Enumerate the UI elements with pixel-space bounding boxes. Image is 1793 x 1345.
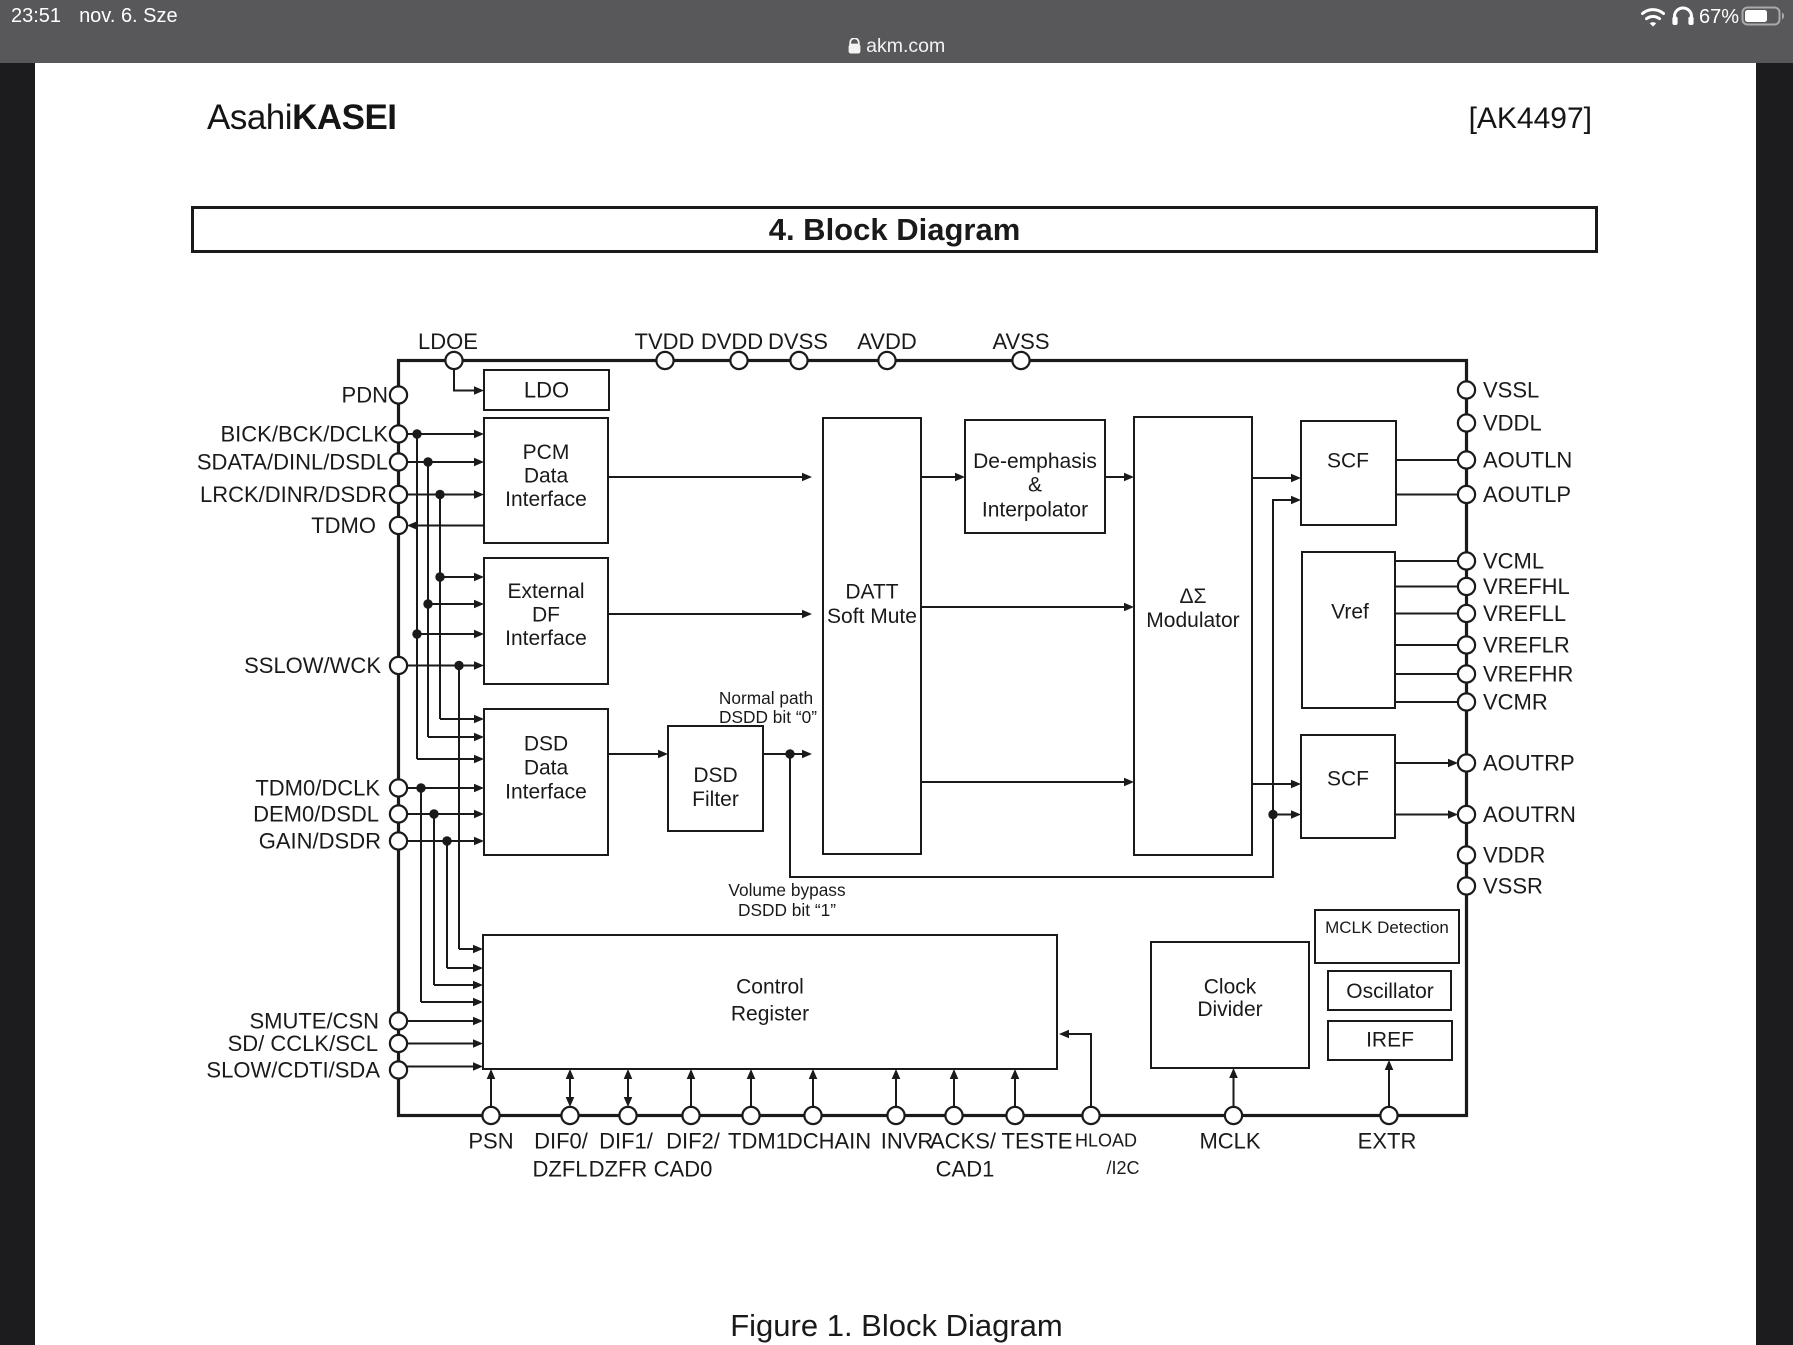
svg-text:DATT: DATT: [845, 581, 898, 604]
svg-text:De-emphasis: De-emphasis: [973, 450, 1097, 473]
svg-text:AVSS: AVSS: [992, 329, 1049, 354]
svg-text:Normal path: Normal path: [719, 688, 813, 708]
svg-text:VREFLL: VREFLL: [1483, 601, 1566, 626]
svg-text:DSD: DSD: [524, 733, 568, 756]
svg-text:LDOE: LDOE: [418, 329, 478, 354]
svg-text:DSDD bit “0”: DSDD bit “0”: [719, 707, 817, 727]
svg-text:SSLOW/WCK: SSLOW/WCK: [244, 653, 381, 678]
svg-text:AOUTRP: AOUTRP: [1483, 751, 1575, 776]
svg-text:HLOAD: HLOAD: [1075, 1131, 1137, 1151]
svg-text:Interface: Interface: [505, 627, 587, 650]
svg-text:Modulator: Modulator: [1146, 609, 1239, 632]
svg-text:/I2C: /I2C: [1106, 1158, 1139, 1178]
svg-text:INVR: INVR: [881, 1129, 934, 1154]
svg-text:MCLK: MCLK: [1199, 1129, 1260, 1154]
svg-text:GAIN/DSDR: GAIN/DSDR: [259, 829, 381, 854]
svg-text:DIF2/: DIF2/: [666, 1129, 721, 1154]
svg-text:AVDD: AVDD: [857, 329, 917, 354]
svg-text:DVDD: DVDD: [701, 329, 763, 354]
svg-text:VREFHL: VREFHL: [1483, 574, 1570, 599]
svg-text:Clock: Clock: [1204, 976, 1257, 999]
svg-text:TDM0/DCLK: TDM0/DCLK: [255, 776, 380, 801]
svg-text:DF: DF: [532, 604, 560, 627]
svg-text:Interpolator: Interpolator: [982, 499, 1088, 522]
svg-text:EXTR: EXTR: [1358, 1129, 1417, 1154]
svg-text:Volume bypass: Volume bypass: [728, 880, 846, 900]
svg-text:LDO: LDO: [524, 378, 569, 403]
svg-text:LRCK/DINR/DSDR: LRCK/DINR/DSDR: [200, 482, 387, 507]
svg-text:PDN: PDN: [342, 383, 388, 408]
svg-text:ΔΣ: ΔΣ: [1179, 585, 1206, 608]
svg-text:CAD1: CAD1: [936, 1157, 995, 1182]
svg-text:Oscillator: Oscillator: [1346, 980, 1434, 1003]
svg-text:Divider: Divider: [1197, 998, 1262, 1021]
svg-text:CAD0: CAD0: [654, 1157, 713, 1182]
svg-text:VSSL: VSSL: [1483, 378, 1539, 403]
svg-text:AOUTRN: AOUTRN: [1483, 802, 1576, 827]
svg-text:DSD: DSD: [693, 764, 737, 787]
svg-text:VREFHR: VREFHR: [1483, 662, 1573, 687]
svg-text:MCLK Detection: MCLK Detection: [1325, 918, 1449, 937]
svg-text:VCMR: VCMR: [1483, 690, 1548, 715]
svg-text:SCF: SCF: [1327, 450, 1369, 473]
svg-text:Filter: Filter: [692, 788, 739, 811]
svg-text:BICK/BCK/DCLK: BICK/BCK/DCLK: [221, 422, 389, 447]
svg-text:SD/ CCLK/SCL: SD/ CCLK/SCL: [228, 1031, 378, 1056]
svg-text:Data: Data: [524, 465, 569, 488]
svg-text:Interface: Interface: [505, 488, 587, 511]
svg-text:VCML: VCML: [1483, 549, 1544, 574]
svg-text:ACKS/: ACKS/: [930, 1129, 997, 1154]
svg-text:SCF: SCF: [1327, 768, 1369, 791]
svg-text:Soft Mute: Soft Mute: [827, 605, 917, 628]
svg-text:DVSS: DVSS: [768, 329, 828, 354]
svg-text:Control: Control: [736, 976, 804, 999]
svg-text:VDDR: VDDR: [1483, 843, 1545, 868]
svg-text:VSSR: VSSR: [1483, 874, 1543, 899]
svg-text:Vref: Vref: [1331, 601, 1369, 624]
svg-text:DZFL: DZFL: [533, 1157, 588, 1182]
svg-text:AOUTLP: AOUTLP: [1483, 482, 1571, 507]
svg-text:PCM: PCM: [523, 441, 570, 464]
svg-text:VDDL: VDDL: [1483, 411, 1542, 436]
svg-text:VREFLR: VREFLR: [1483, 633, 1570, 658]
svg-text:TDMO: TDMO: [311, 513, 376, 538]
svg-text:SMUTE/CSN: SMUTE/CSN: [249, 1009, 379, 1034]
svg-text:AOUTLN: AOUTLN: [1483, 448, 1572, 473]
svg-text:PSN: PSN: [468, 1129, 513, 1154]
svg-text:DIF1/: DIF1/: [599, 1129, 654, 1154]
svg-text:TDM1: TDM1: [728, 1129, 788, 1154]
svg-text:&: &: [1028, 474, 1042, 497]
svg-text:External: External: [507, 580, 584, 603]
svg-text:TVDD: TVDD: [635, 329, 695, 354]
svg-text:Interface: Interface: [505, 781, 587, 804]
svg-text:TESTE: TESTE: [1002, 1129, 1073, 1154]
svg-text:SDATA/DINL/DSDL: SDATA/DINL/DSDL: [197, 450, 388, 475]
svg-text:IREF: IREF: [1366, 1029, 1414, 1052]
svg-text:DIF0/: DIF0/: [534, 1129, 589, 1154]
svg-text:Register: Register: [731, 1003, 809, 1026]
svg-text:SLOW/CDTI/SDA: SLOW/CDTI/SDA: [206, 1058, 380, 1083]
svg-text:DCHAIN: DCHAIN: [787, 1129, 871, 1154]
svg-text:Data: Data: [524, 757, 569, 780]
svg-text:DSDD bit “1”: DSDD bit “1”: [738, 900, 836, 920]
svg-text:DZFR: DZFR: [589, 1157, 648, 1182]
svg-text:DEM0/DSDL: DEM0/DSDL: [253, 802, 379, 827]
